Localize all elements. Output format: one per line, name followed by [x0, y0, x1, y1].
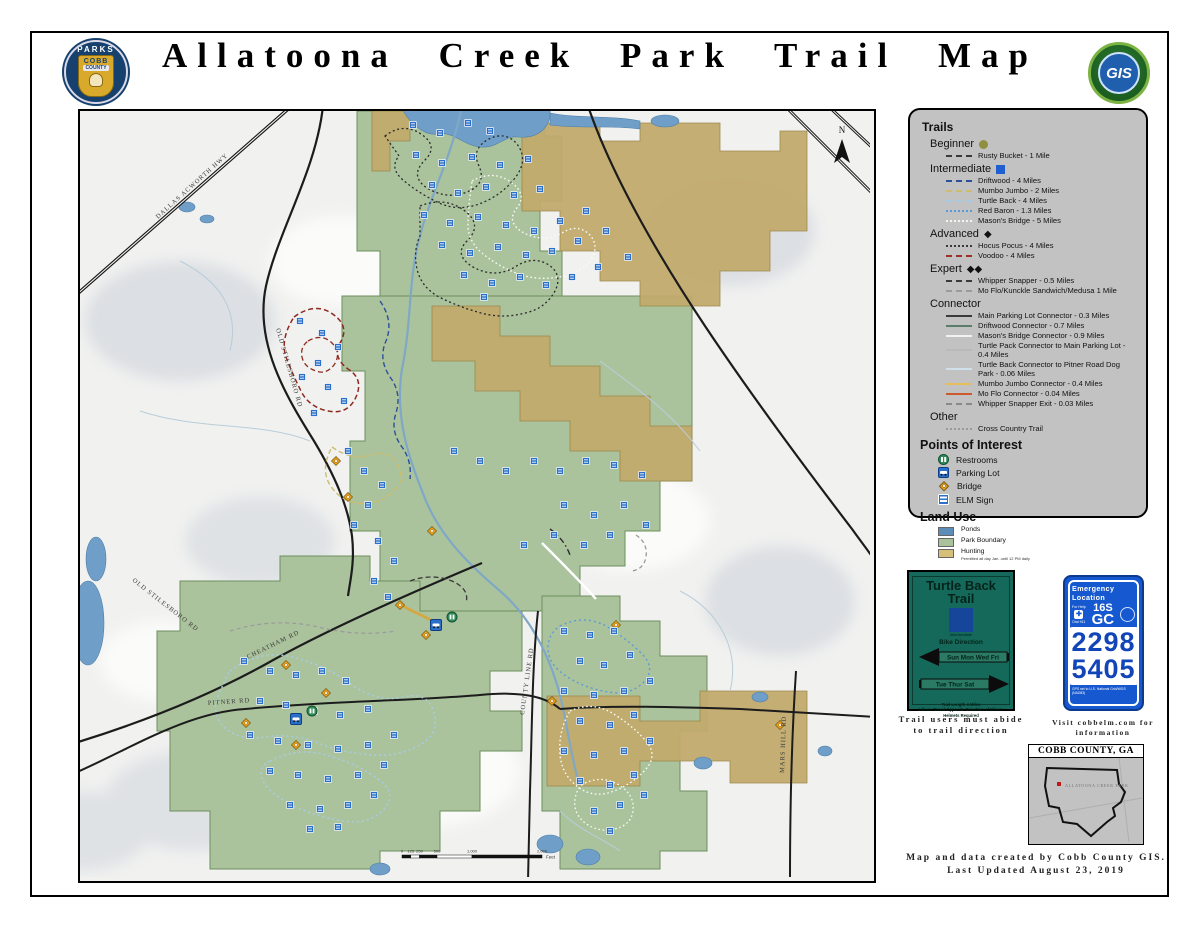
elm-sign-marker: [561, 502, 568, 509]
elm-sign-marker: [591, 808, 598, 815]
elm-sign-marker: [631, 772, 638, 779]
elm-sign-marker: [607, 722, 614, 729]
elm-sign-marker: [283, 702, 290, 709]
elm-sign-marker: [335, 344, 342, 351]
legend-trail-groups: BeginnerRusty Bucket - 1 MileIntermediat…: [920, 138, 1136, 433]
parking-marker: [291, 714, 302, 725]
tsign-footer-2: Hikers Travel Opposite Direction of Bike…: [919, 707, 1003, 712]
bike-direction-left-arrow: Sun Mon Wed Fri: [915, 646, 1013, 668]
elm-sign-marker: [641, 792, 648, 799]
legend-item: Whipper Snapper - 0.5 Miles: [946, 276, 1136, 285]
elm-sign-marker: [447, 220, 454, 227]
elm-sign-marker: [287, 802, 294, 809]
elm-sign-marker: [410, 122, 417, 129]
park-location-dot: [1057, 782, 1061, 786]
elm-sign-marker: [437, 130, 444, 137]
elm-sign-marker: [611, 462, 618, 469]
elm-sign-marker: [455, 190, 462, 197]
legend-panel: Trails BeginnerRusty Bucket - 1 MileInte…: [908, 108, 1148, 518]
trail-line-swatch: [946, 383, 972, 385]
legend-group-label: Advanced◆: [930, 228, 1136, 240]
esign-for-help: For Help: [1072, 605, 1086, 609]
poi-parking: Parking Lot: [938, 467, 1136, 478]
elm-sign-marker: [517, 274, 524, 281]
parking-icon: [938, 467, 949, 478]
elm-sign-marker: [317, 806, 324, 813]
elm-sign-icon: [938, 494, 949, 505]
elm-sign-marker: [583, 208, 590, 215]
trail-line-swatch: [946, 349, 972, 351]
legend-item: Hocus Pocus - 4 Miles: [946, 241, 1136, 250]
legend-item: Main Parking Lot Connector - 0.3 Miles: [946, 311, 1136, 320]
cobb-county-parks-logo: PARKS COBB COUNTY: [64, 40, 128, 104]
turtle-back-trail-sign: Turtle Back Trail Intermediate Bike Dire…: [907, 570, 1015, 711]
trail-line-swatch: [946, 335, 972, 337]
trail-map: DALLAS ACWORTH HWYOLD STILESBORO RDOLD S…: [80, 111, 870, 877]
parks-logo-shield: COBB COUNTY: [78, 55, 114, 97]
elm-sign-marker: [371, 578, 378, 585]
restroom-marker: [447, 612, 457, 622]
elm-sign-marker: [521, 542, 528, 549]
elm-sign-marker: [335, 824, 342, 831]
legend-group-label: Other: [930, 411, 1136, 423]
beginner-circle-icon: [979, 140, 988, 149]
elm-sign-marker: [429, 182, 436, 189]
esign-grid-square: GC: [1092, 614, 1115, 625]
parks-logo-text: PARKS: [77, 45, 114, 54]
legend-item: Driftwood - 4 Miles: [946, 176, 1136, 185]
inset-title: COBB COUNTY, GA: [1029, 745, 1143, 758]
elm-sign-marker: [557, 468, 564, 475]
legend-title: Trails: [922, 120, 1136, 134]
legend-group-label: Beginner: [930, 138, 1136, 150]
elm-sign-marker: [365, 706, 372, 713]
elm-sign-marker: [607, 828, 614, 835]
legend-item: Mo Flo/Kunckle Sandwich/Medusa 1 Mile: [946, 286, 1136, 295]
landuse-park-boundary: Park Boundary: [938, 537, 1136, 547]
elm-sign-marker: [561, 688, 568, 695]
landuse-ponds: Ponds: [938, 526, 1136, 536]
legend-group-label: Expert◆◆: [930, 263, 1136, 275]
elm-sign-marker: [495, 244, 502, 251]
elm-sign-marker: [365, 742, 372, 749]
restroom-icon: [938, 454, 949, 465]
scale-tick-label: 500: [434, 849, 441, 854]
county-outline-map: ALLATOONA CREEK PARK: [1029, 758, 1142, 842]
tsign-difficulty: Intermediate: [915, 632, 1007, 637]
trail-line-swatch: [946, 155, 972, 157]
elm-sign-marker: [341, 398, 348, 405]
elm-sign-marker: [469, 154, 476, 161]
legend-item: Mason's Bridge Connector - 0.9 Miles: [946, 331, 1136, 340]
elm-sign-marker: [335, 746, 342, 753]
ponds-chip: [938, 527, 954, 536]
elm-sign-marker: [311, 410, 318, 417]
trail-line-swatch: [946, 403, 972, 405]
hunting-note: Permitted all day Jan. until 12 PM daily: [961, 556, 1030, 561]
legend-item: Mason's Bridge - 5 Miles: [946, 216, 1136, 225]
poi-bridge: Bridge: [938, 480, 1136, 492]
elm-sign-marker: [421, 212, 428, 219]
advanced-diamond-icon: ◆: [984, 230, 992, 239]
elm-sign-marker: [621, 502, 628, 509]
scale-unit-label: Feet: [546, 855, 556, 860]
elm-sign-marker: [319, 668, 326, 675]
esign-dial: Dial 911: [1072, 620, 1085, 624]
elm-sign-marker: [257, 698, 264, 705]
elm-sign-marker: [531, 458, 538, 465]
legend-item: Turtle Back - 4 Miles: [946, 196, 1136, 205]
elm-sign-marker: [549, 248, 556, 255]
elm-sign-marker: [489, 280, 496, 287]
elm-sign-marker: [481, 294, 488, 301]
svg-text:Tue Thur Sat: Tue Thur Sat: [936, 682, 975, 689]
legend-item: Driftwood Connector - 0.7 Miles: [946, 321, 1136, 330]
legend-item: Red Baron - 1.3 Miles: [946, 206, 1136, 215]
trail-line-swatch: [946, 220, 972, 222]
elm-sign-marker: [581, 542, 588, 549]
elm-sign-marker: [379, 482, 386, 489]
poi-title: Points of Interest: [920, 438, 1136, 452]
elm-sign-marker: [601, 662, 608, 669]
legend-item: Mumbo Jumbo - 2 Miles: [946, 186, 1136, 195]
elm-sign-marker: [439, 242, 446, 249]
elm-sign-marker: [591, 752, 598, 759]
elm-sign-marker: [557, 218, 564, 225]
intermediate-square-icon: [996, 165, 1005, 174]
parking-marker: [431, 620, 442, 631]
elm-sign-marker: [305, 742, 312, 749]
legend-item: Mo Flo Connector - 0.04 Miles: [946, 389, 1136, 398]
elm-sign-marker: [343, 678, 350, 685]
elm-sign-marker: [511, 192, 518, 199]
elm-sign-marker: [375, 538, 382, 545]
elm-sign-marker: [477, 458, 484, 465]
tsign-title-2: Trail: [948, 591, 975, 606]
trail-line-swatch: [946, 428, 972, 430]
credits: Map and data created by Cobb County GIS.…: [893, 852, 1179, 878]
elm-sign-marker: [577, 718, 584, 725]
elm-sign-marker: [295, 772, 302, 779]
tsign-footer-1: Trail Length 4 Miles: [942, 702, 981, 707]
elm-sign-marker: [307, 826, 314, 833]
elm-sign-marker: [325, 384, 332, 391]
bridge-icon: [938, 480, 950, 492]
county-inset-map: COBB COUNTY, GA ALLATOONA CREEK PARK: [1028, 744, 1144, 845]
esign-header: Emergency Location: [1072, 584, 1135, 602]
expert-double-diamond-icon: ◆◆: [967, 265, 982, 274]
elm-sign-marker: [621, 688, 628, 695]
elm-sign-marker: [603, 228, 610, 235]
elm-sign-marker: [345, 448, 352, 455]
elm-sign-marker: [267, 668, 274, 675]
elm-sign-marker: [503, 468, 510, 475]
trail-line-swatch: [946, 393, 972, 395]
landuse-title: Land Use: [920, 510, 1136, 524]
elm-sign-marker: [361, 468, 368, 475]
elm-sign-marker: [385, 594, 392, 601]
legend-item: Turtle Back Connector to Pitner Road Dog…: [946, 360, 1136, 378]
scale-tick-label: 1,000: [467, 849, 478, 854]
elm-sign-marker: [577, 778, 584, 785]
elm-sign-marker: [591, 692, 598, 699]
trail-line-swatch: [946, 190, 972, 192]
elm-sign-marker: [561, 628, 568, 635]
elm-sign-marker: [365, 502, 372, 509]
elm-sign-marker: [561, 748, 568, 755]
trail-line-swatch: [946, 180, 972, 182]
scale-tick-label: 2,000: [537, 849, 548, 854]
legend-group-label: Connector: [930, 298, 1136, 310]
svg-text:ALLATOONA CREEK PARK: ALLATOONA CREEK PARK: [1065, 783, 1129, 788]
legend-group-label: Intermediate: [930, 163, 1136, 175]
trail-line-swatch: [946, 245, 972, 247]
elm-sign-marker: [611, 628, 618, 635]
park-boundary-chip: [938, 538, 954, 547]
elm-sign-marker: [587, 632, 594, 639]
svg-text:N: N: [839, 125, 846, 135]
svg-text:Sun Mon Wed Fri: Sun Mon Wed Fri: [947, 655, 999, 662]
scale-segment: [437, 855, 472, 858]
elm-sign-marker: [275, 738, 282, 745]
elm-sign-marker: [241, 658, 248, 665]
page-title: Allatoona Creek Park Trail Map: [150, 36, 1050, 76]
elm-sign-marker: [639, 472, 646, 479]
elm-sign-marker: [647, 738, 654, 745]
intermediate-square-icon: [949, 608, 973, 632]
legend-item: Mumbo Jumbo Connector - 0.4 Miles: [946, 379, 1136, 388]
elm-sign-marker: [391, 558, 398, 565]
elm-sign-marker: [345, 802, 352, 809]
elm-sign-marker: [627, 652, 634, 659]
scale-segment: [411, 855, 420, 858]
trail-line-swatch: [946, 325, 972, 327]
trail-line-swatch: [946, 368, 972, 370]
trail-line-swatch: [946, 200, 972, 202]
trail-line-swatch: [946, 210, 972, 212]
elm-sign-marker: [583, 458, 590, 465]
elm-sign-marker: [439, 160, 446, 167]
elm-sign-marker: [297, 318, 304, 325]
elm-sign-marker: [391, 732, 398, 739]
elm-sign-marker: [617, 802, 624, 809]
legend-item: Rusty Bucket - 1 Mile: [946, 151, 1136, 160]
elm-sign-marker: [475, 214, 482, 221]
trail-line-swatch: [946, 315, 972, 317]
elm-sign-marker: [643, 522, 650, 529]
hunting-chip: [938, 549, 954, 558]
cobb-gis-logo: GIS: [1088, 42, 1150, 104]
elm-sign-marker: [293, 672, 300, 679]
elm-sign-marker: [325, 776, 332, 783]
elm-sign-marker: [371, 792, 378, 799]
elm-sign-marker: [577, 658, 584, 665]
elm-sign-marker: [465, 120, 472, 127]
elm-sign-marker: [531, 228, 538, 235]
elm-sign-marker: [451, 448, 458, 455]
elm-sign-marker: [351, 522, 358, 529]
elm-sign-marker: [461, 272, 468, 279]
elm-sign-marker: [607, 532, 614, 539]
elm-sign-marker: [523, 252, 530, 259]
elm-sign-marker: [503, 222, 510, 229]
legend-item: Cross Country Trail: [946, 424, 1136, 433]
esign-seal-icon: [1120, 607, 1135, 622]
esign-coordinates: 2298 5405: [1069, 627, 1139, 685]
elm-sign-marker: [497, 162, 504, 169]
emergency-sign-caption: Visit cobbelm.com forinformation: [1046, 718, 1160, 738]
elm-sign-marker: [647, 678, 654, 685]
tsign-bike-direction: Bike Direction: [915, 639, 1007, 646]
elm-sign-marker: [299, 374, 306, 381]
elm-sign-marker: [591, 512, 598, 519]
bell-icon: [89, 73, 103, 87]
elm-sign-marker: [319, 330, 326, 337]
scale-tick-label: 125: [407, 849, 414, 854]
map-frame: DALLAS ACWORTH HWYOLD STILESBORO RDOLD S…: [78, 109, 876, 883]
elm-sign-marker: [631, 712, 638, 719]
elm-sign-marker: [551, 532, 558, 539]
trail-line-swatch: [946, 280, 972, 282]
legend-item: Turtle Pack Connector to Main Parking Lo…: [946, 341, 1136, 359]
elm-sign-marker: [543, 282, 550, 289]
elm-sign-marker: [467, 250, 474, 257]
elm-sign-marker: [355, 772, 362, 779]
trail-map-page: PARKS COBB COUNTY Allatoona Creek Park T…: [0, 0, 1198, 926]
trail-line-swatch: [946, 290, 972, 292]
bike-direction-right-arrow: Tue Thur Sat: [915, 673, 1013, 695]
elm-sign-marker: [483, 184, 490, 191]
elm-sign-marker: [607, 782, 614, 789]
legend-item: Whipper Snapper Exit - 0.03 Miles: [946, 399, 1136, 408]
elm-sign-marker: [315, 360, 322, 367]
restroom-marker: [307, 706, 317, 716]
turtle-sign-caption: Trail users must abideto trail direction: [895, 714, 1027, 736]
landuse-hunting: Hunting Permitted all day Jan. until 12 …: [938, 548, 1136, 562]
emergency-location-sign: Emergency Location For Help ✚ Dial 911 1…: [1063, 575, 1144, 711]
legend-item: Voodoo - 4 Miles: [946, 251, 1136, 260]
elm-sign-marker: [569, 274, 576, 281]
poi-restrooms: Restrooms: [938, 454, 1136, 465]
esign-footer: GPS set to U.S. National Grid/WGS (NAD83…: [1072, 687, 1135, 695]
elm-sign-marker: [247, 732, 254, 739]
elm-sign-marker: [575, 238, 582, 245]
elm-sign-marker: [625, 254, 632, 261]
trail-line-swatch: [946, 255, 972, 257]
poi-elm-sign: ELM Sign: [938, 494, 1136, 505]
elm-sign-marker: [487, 128, 494, 135]
scale-tick-label: 250: [416, 849, 423, 854]
star-of-life-icon: ✚: [1074, 610, 1083, 619]
elm-sign-marker: [621, 748, 628, 755]
elm-sign-marker: [413, 152, 420, 159]
scale-segment: [402, 855, 411, 858]
elm-sign-marker: [525, 156, 532, 163]
scale-segment: [472, 855, 542, 858]
elm-sign-marker: [595, 264, 602, 271]
elm-sign-marker: [381, 762, 388, 769]
elm-sign-marker: [337, 712, 344, 719]
elm-sign-marker: [537, 186, 544, 193]
scale-segment: [420, 855, 438, 858]
elm-sign-marker: [267, 768, 274, 775]
